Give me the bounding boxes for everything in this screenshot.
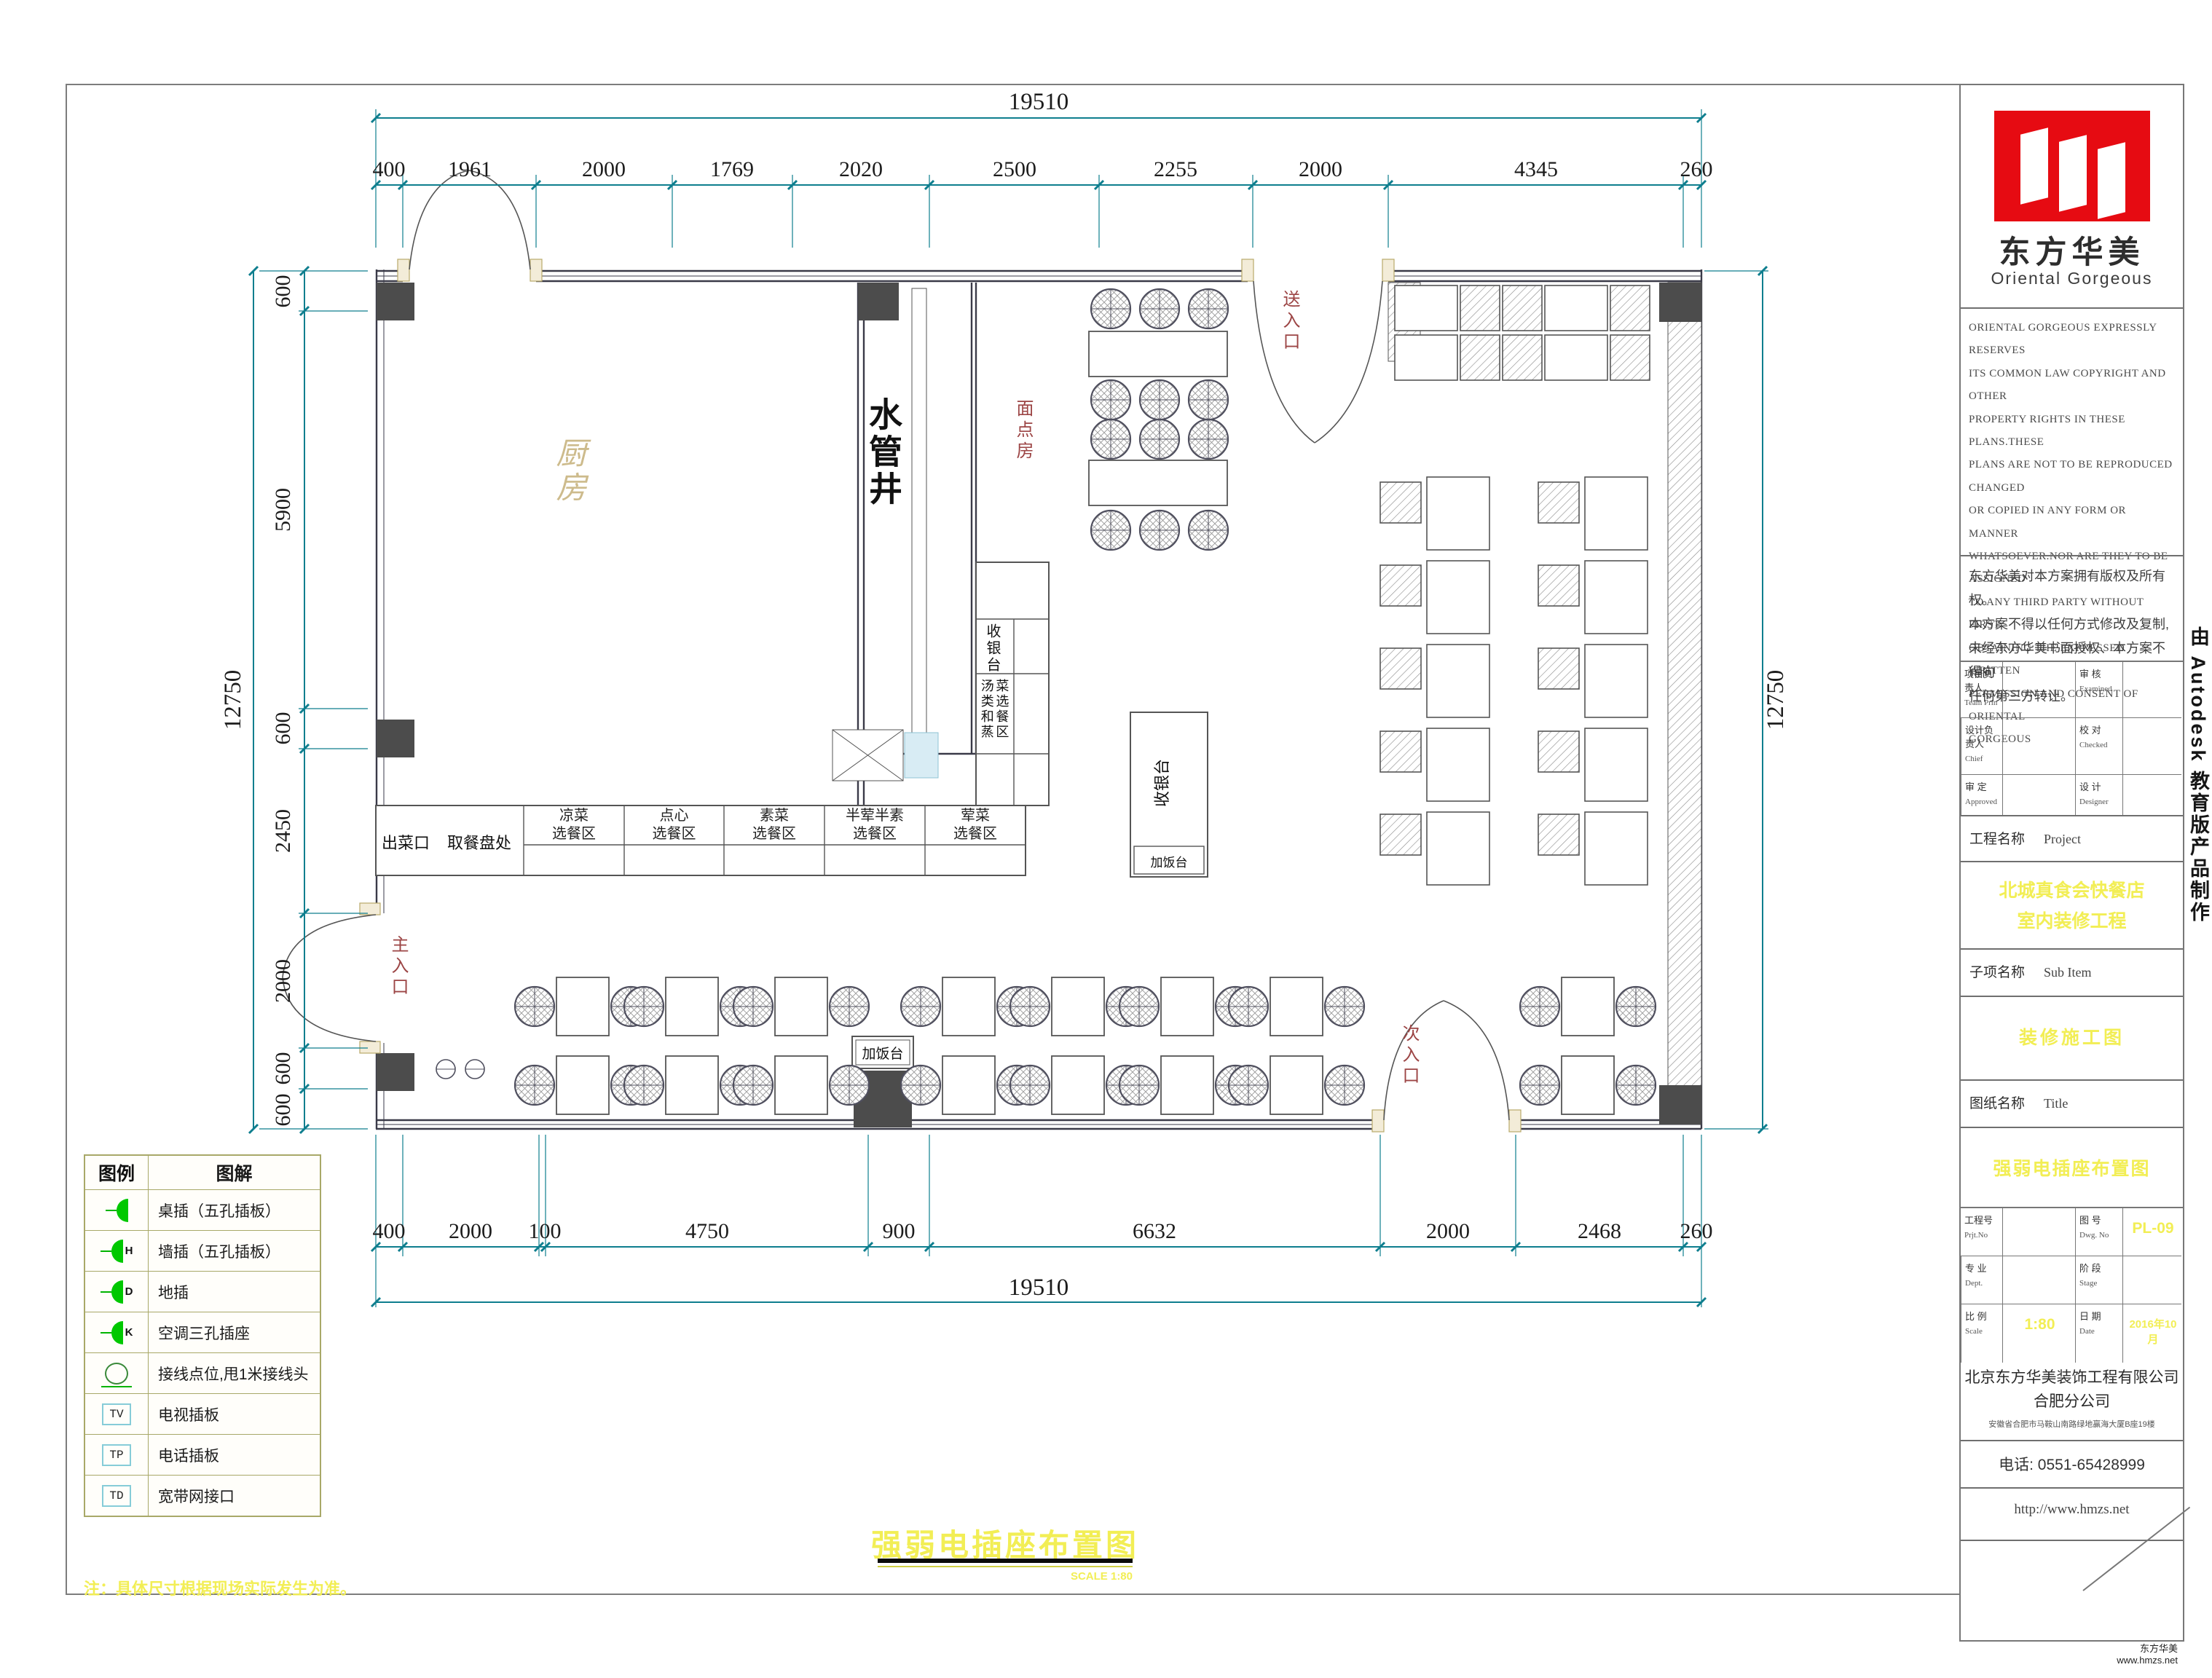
svg-text:19510: 19510 — [1009, 89, 1069, 115]
company-phone: 电话: 0551-65428999 — [1961, 1453, 2183, 1475]
sheet-title-label: 图纸名称Title — [1969, 1092, 2068, 1112]
sheet-title-value: 强弱电插座布置图 — [1961, 1154, 2183, 1181]
svg-text:2000: 2000 — [271, 959, 295, 1003]
cold-dish-area-label: 凉菜 选餐区 — [524, 807, 624, 843]
legend-label: 电视插板 — [149, 1394, 320, 1434]
legend-row: H 墙插（五孔插板） — [85, 1230, 320, 1271]
duct — [912, 288, 926, 752]
title-underline — [878, 1559, 1133, 1563]
company-address: 安徽省合肥市马鞍山南路绿地赢海大厦B座19楼 — [1961, 1418, 2183, 1430]
svg-text:600: 600 — [271, 275, 295, 308]
subitem-value: 装修施工图 — [1961, 1023, 2183, 1049]
hatched-wall-strip — [1668, 283, 1701, 1120]
legend-row: D 地插 — [85, 1271, 320, 1312]
svg-text:400: 400 — [373, 1219, 406, 1243]
crossed-equipment-box — [833, 730, 938, 781]
logo-company-name-cn: 东方华美 — [1961, 227, 2183, 272]
svg-text:4345: 4345 — [1514, 157, 1558, 181]
round-table-cluster — [1089, 289, 1228, 550]
kitchen-label: 厨房 — [554, 437, 584, 505]
water-shaft-label: 水管井 — [867, 397, 900, 508]
half-meat-area-label: 半荤半素 选餐区 — [824, 807, 925, 843]
veg-area-label: 素菜 选餐区 — [724, 807, 824, 843]
svg-text:12750: 12750 — [1763, 670, 1789, 730]
legend-label: 宽带网接口 — [149, 1476, 320, 1516]
svg-text:12750: 12750 — [220, 670, 246, 730]
svg-text:1961: 1961 — [448, 157, 492, 181]
legend-header-symbol: 图例 — [85, 1156, 149, 1189]
legend-row: 接线点位,甩1米接线头 — [85, 1352, 320, 1393]
doors — [283, 170, 1521, 1132]
svg-text:2020: 2020 — [839, 157, 883, 181]
svg-text:2000: 2000 — [582, 157, 626, 181]
junction-point-icon — [105, 1363, 128, 1384]
desk-socket-icon — [106, 1199, 128, 1222]
legend-row: K 空调三孔插座 — [85, 1312, 320, 1352]
cut-corner-line — [2082, 1507, 2190, 1591]
svg-text:260: 260 — [1680, 157, 1713, 181]
meat-area-label: 荤菜 选餐区 — [925, 807, 1026, 843]
date-value: 2016年10月 — [2127, 1316, 2179, 1347]
svg-text:5900: 5900 — [271, 488, 295, 532]
legend-label: 桌插（五孔插板） — [149, 1190, 320, 1230]
svg-text:2000: 2000 — [1426, 1219, 1470, 1243]
booth-seating — [1395, 285, 1650, 380]
svg-text:4750: 4750 — [685, 1219, 729, 1243]
legend-row: 桌插（五孔插板） — [85, 1189, 320, 1230]
drawing-number: PL-09 — [2127, 1220, 2179, 1237]
wall-socket-icon: H — [101, 1240, 133, 1263]
title-block: 东方华美 Oriental Gorgeous ORIENTAL GORGEOUS… — [1959, 84, 2184, 1642]
drawing-sheet: 19510 400 1961 2000 1769 2020 2500 2255 … — [0, 0, 2212, 1678]
right-seating — [1380, 477, 1648, 885]
subitem-label: 子项名称Sub Item — [1969, 961, 2092, 981]
company-website: http://www.hmzs.net — [1961, 1502, 2183, 1518]
svg-text:2255: 2255 — [1154, 157, 1197, 181]
floor-socket-icon: D — [101, 1280, 133, 1304]
company-logo — [1994, 111, 2150, 221]
legend-label: 接线点位,甩1米接线头 — [149, 1353, 320, 1393]
svg-text:600: 600 — [271, 1052, 295, 1085]
main-entrance-label: 主入口 — [389, 935, 406, 998]
legend-label: 地插 — [149, 1272, 320, 1312]
dining-tables — [556, 977, 1614, 1114]
dining-chairs — [436, 987, 1656, 1105]
svg-text:400: 400 — [373, 157, 406, 181]
title-underline-2 — [878, 1566, 1133, 1567]
meta-table: 工程号Prjt.No 图 号Dwg. No PL-09 专 业Dept. 阶 段… — [1961, 1207, 2183, 1363]
rice-station-desk-label: 加饭台 — [1134, 852, 1204, 870]
legend-header-desc: 图解 — [149, 1156, 320, 1189]
svg-text:260: 260 — [1680, 1219, 1713, 1243]
svg-text:2000: 2000 — [449, 1219, 492, 1243]
logo-company-name-en: Oriental Gorgeous — [1961, 269, 2183, 288]
dimsum-area-label: 点心 选餐区 — [624, 807, 724, 843]
delivery-entrance-label: 送入口 — [1280, 290, 1298, 353]
svg-text:2000: 2000 — [1299, 157, 1342, 181]
secondary-entrance-label: 次入口 — [1400, 1024, 1417, 1087]
scale-value: 1:80 — [2007, 1316, 2073, 1334]
svg-text:600: 600 — [271, 712, 295, 745]
ac-socket-icon: K — [101, 1321, 133, 1344]
phone-outlet-icon: TP — [102, 1444, 131, 1466]
svg-text:2500: 2500 — [993, 157, 1036, 181]
legend-label: 空调三孔插座 — [149, 1312, 320, 1352]
legend-label: 电话插板 — [149, 1435, 320, 1475]
drawing-scale-note: SCALE 1:80 — [1012, 1570, 1133, 1583]
tray-pickup-label: 取餐盘处 — [447, 830, 511, 854]
soup-steam-area-label: 汤类和蒸菜选餐区 — [979, 679, 1009, 752]
svg-text:19510: 19510 — [1009, 1275, 1069, 1301]
cashier-counter-label: 收银台 — [983, 623, 1000, 674]
svg-text:2468: 2468 — [1578, 1219, 1621, 1243]
project-name: 北城真食会快餐店 室内装修工程 — [1961, 875, 2183, 937]
legend-row: TP 电话插板 — [85, 1434, 320, 1475]
svg-text:600: 600 — [271, 1094, 295, 1127]
serving-exit-label: 出菜口 — [382, 830, 430, 854]
floor-plan-graphics: 19510 400 1961 2000 1769 2020 2500 2255 … — [0, 0, 2212, 1678]
broadband-outlet-icon: TD — [102, 1485, 131, 1507]
tv-outlet-icon: TV — [102, 1403, 131, 1425]
svg-text:6632: 6632 — [1133, 1219, 1176, 1243]
legend-row: TD 宽带网接口 — [85, 1475, 320, 1516]
cashier-desk-label: 收银台 — [1149, 736, 1173, 830]
legend-table: 图例 图解 桌插（五孔插板） H 墙插（五孔插板） D 地插 K 空调三孔插座 … — [84, 1154, 321, 1517]
svg-text:1769: 1769 — [710, 157, 754, 181]
legend-row: TV 电视插板 — [85, 1393, 320, 1434]
legend-label: 墙插（五孔插板） — [149, 1231, 320, 1271]
roles-table: 项目负责人Team Prin 审 核Examined 设计负责人Chief 校 … — [1961, 661, 2183, 816]
svg-text:100: 100 — [529, 1219, 562, 1243]
svg-text:2450: 2450 — [271, 809, 295, 853]
pastry-room-label: 面点房 — [1014, 399, 1031, 462]
company-name: 北京东方华美装饰工程有限公司 合肥分公司 — [1961, 1366, 2183, 1414]
project-label: 工程名称Project — [1969, 828, 2081, 848]
rice-station-label: 加饭台 — [852, 1043, 913, 1063]
footer-brand: 东方华美 www.hmzs.net — [2072, 1643, 2178, 1666]
svg-text:900: 900 — [883, 1219, 916, 1243]
site-note: 注：具体尺寸根据现场实际发生为准。 — [84, 1576, 356, 1599]
legend-header: 图例 图解 — [85, 1156, 320, 1189]
autodesk-edu-strip: 由 Autodesk 教育版产品制作 — [2184, 626, 2212, 1180]
